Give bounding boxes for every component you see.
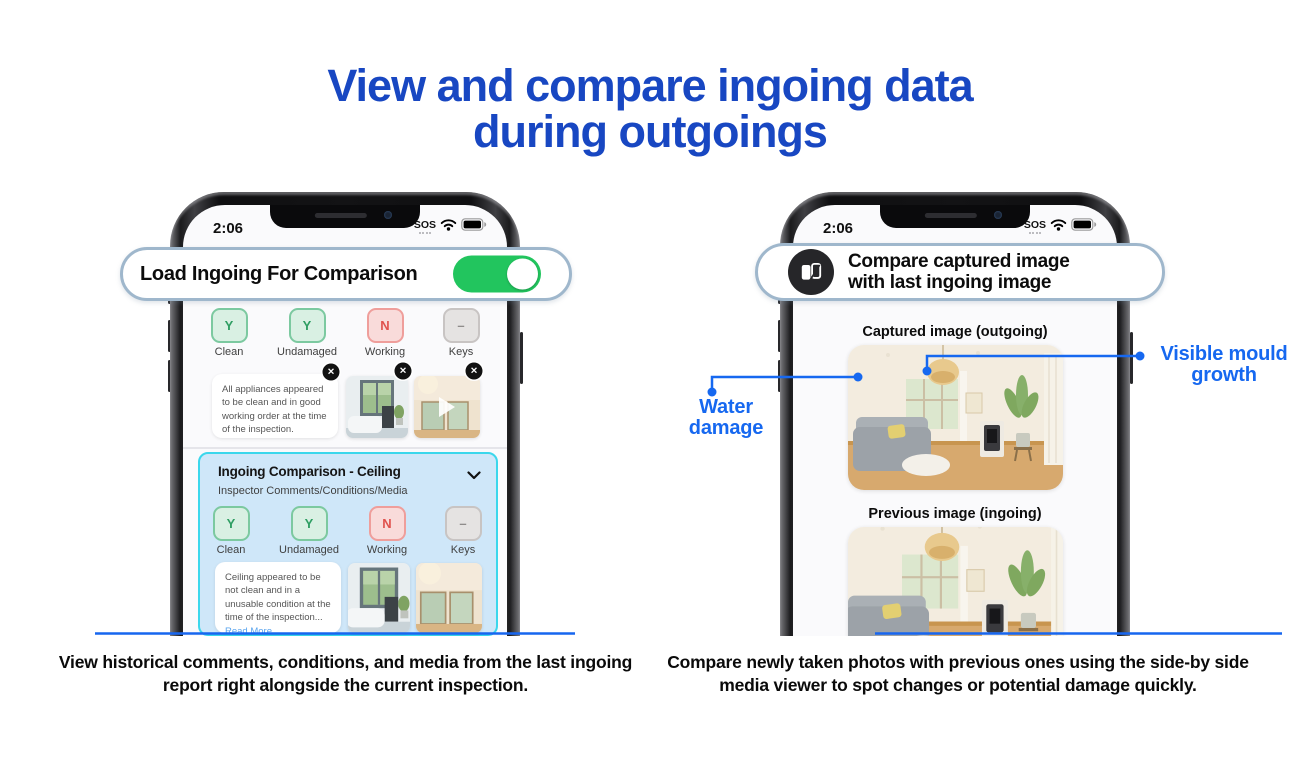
battery-icon [461, 218, 487, 236]
media-thumbnail-photo[interactable] [346, 376, 408, 438]
read-more-link[interactable]: Read More [225, 626, 272, 636]
status-time: 2:06 [213, 220, 243, 237]
ingoing-comparison-title: Ingoing Comparison - Ceiling [218, 464, 401, 479]
ingoing-comparison-card: Ingoing Comparison - Ceiling Inspector C… [198, 452, 498, 636]
previous-image[interactable] [848, 527, 1063, 636]
right-caption: Compare newly taken photos with previous… [653, 651, 1263, 697]
front-camera [994, 211, 1002, 219]
condition-chip-undamaged[interactable]: Y [289, 308, 326, 343]
compare-callout: Compare captured image with last ingoing… [755, 243, 1165, 301]
ingoing-chip-clean[interactable]: Y [213, 506, 250, 541]
ingoing-label-working: Working [367, 544, 407, 556]
close-icon[interactable]: ✕ [323, 364, 340, 381]
ingoing-chip-undamaged[interactable]: Y [291, 506, 328, 541]
wifi-icon [1050, 218, 1067, 236]
play-icon[interactable] [439, 397, 455, 417]
inspector-comment: All appliances appeared to be clean and … [212, 374, 338, 438]
captured-image-label: Captured image (outgoing) [793, 324, 1117, 340]
visible-mould-annotation: Visible mould growth [1148, 344, 1300, 386]
page-title-line2: during outgoings [0, 109, 1300, 155]
left-caption: View historical comments, conditions, an… [58, 651, 633, 697]
page-title-line1: View and compare ingoing data [0, 63, 1300, 109]
status-time: 2:06 [823, 220, 853, 237]
sos-indicator: SOS [414, 220, 436, 234]
water-damage-annotation: Water damage [655, 397, 797, 439]
battery-icon [1071, 218, 1097, 236]
condition-label-keys: Keys [449, 346, 473, 358]
condition-chip-keys[interactable]: – [443, 308, 480, 343]
ingoing-comparison-subtitle: Inspector Comments/Conditions/Media [218, 485, 408, 497]
front-camera [384, 211, 392, 219]
chevron-down-icon[interactable] [467, 467, 481, 485]
condition-label-undamaged: Undamaged [277, 346, 337, 358]
section-divider [183, 447, 507, 449]
ingoing-comment: Ceiling appeared to be not clean and in … [215, 562, 341, 633]
condition-label-clean: Clean [215, 346, 244, 358]
toggle-knob [507, 259, 538, 290]
ingoing-media-ceiling-photo[interactable] [416, 563, 482, 633]
water-damage-line1: Water [655, 397, 797, 418]
speaker-slot [315, 213, 367, 218]
load-ingoing-toggle[interactable] [453, 256, 541, 293]
visible-mould-line2: growth [1148, 365, 1300, 386]
ingoing-comment-text: Ceiling appeared to be not clean and in … [225, 572, 331, 623]
load-ingoing-callout: Load Ingoing For Comparison [120, 247, 572, 301]
close-icon[interactable]: ✕ [466, 363, 483, 380]
captured-image[interactable] [848, 345, 1063, 490]
notch [270, 205, 420, 228]
compare-callout-line1: Compare captured image [848, 251, 1069, 272]
visible-mould-line1: Visible mould [1148, 344, 1300, 365]
ingoing-label-keys: Keys [451, 544, 475, 556]
condition-chip-working[interactable]: N [367, 308, 404, 343]
status-icons: SOS [414, 218, 487, 236]
condition-label-working: Working [365, 346, 405, 358]
load-ingoing-label: Load Ingoing For Comparison [140, 263, 417, 286]
ingoing-chip-keys[interactable]: – [445, 506, 482, 541]
status-icons: SOS [1024, 218, 1097, 236]
compare-callout-text: Compare captured image with last ingoing… [848, 251, 1069, 294]
mould-dot [1136, 352, 1145, 361]
close-icon[interactable]: ✕ [395, 363, 412, 380]
ingoing-label-clean: Clean [217, 544, 246, 556]
page-title: View and compare ingoing data during out… [0, 63, 1300, 155]
compare-icon [788, 249, 834, 295]
ingoing-chip-working[interactable]: N [369, 506, 406, 541]
wifi-icon [440, 218, 457, 236]
media-thumbnail-video[interactable] [414, 376, 480, 438]
ingoing-media-photo[interactable] [348, 563, 410, 633]
previous-image-label: Previous image (ingoing) [793, 506, 1117, 522]
ingoing-label-undamaged: Undamaged [279, 544, 339, 556]
water-damage-line2: damage [655, 418, 797, 439]
compare-callout-line2: with last ingoing image [848, 272, 1069, 293]
speaker-slot [925, 213, 977, 218]
notch [880, 205, 1030, 228]
condition-chip-clean[interactable]: Y [211, 308, 248, 343]
sos-indicator: SOS [1024, 220, 1046, 234]
